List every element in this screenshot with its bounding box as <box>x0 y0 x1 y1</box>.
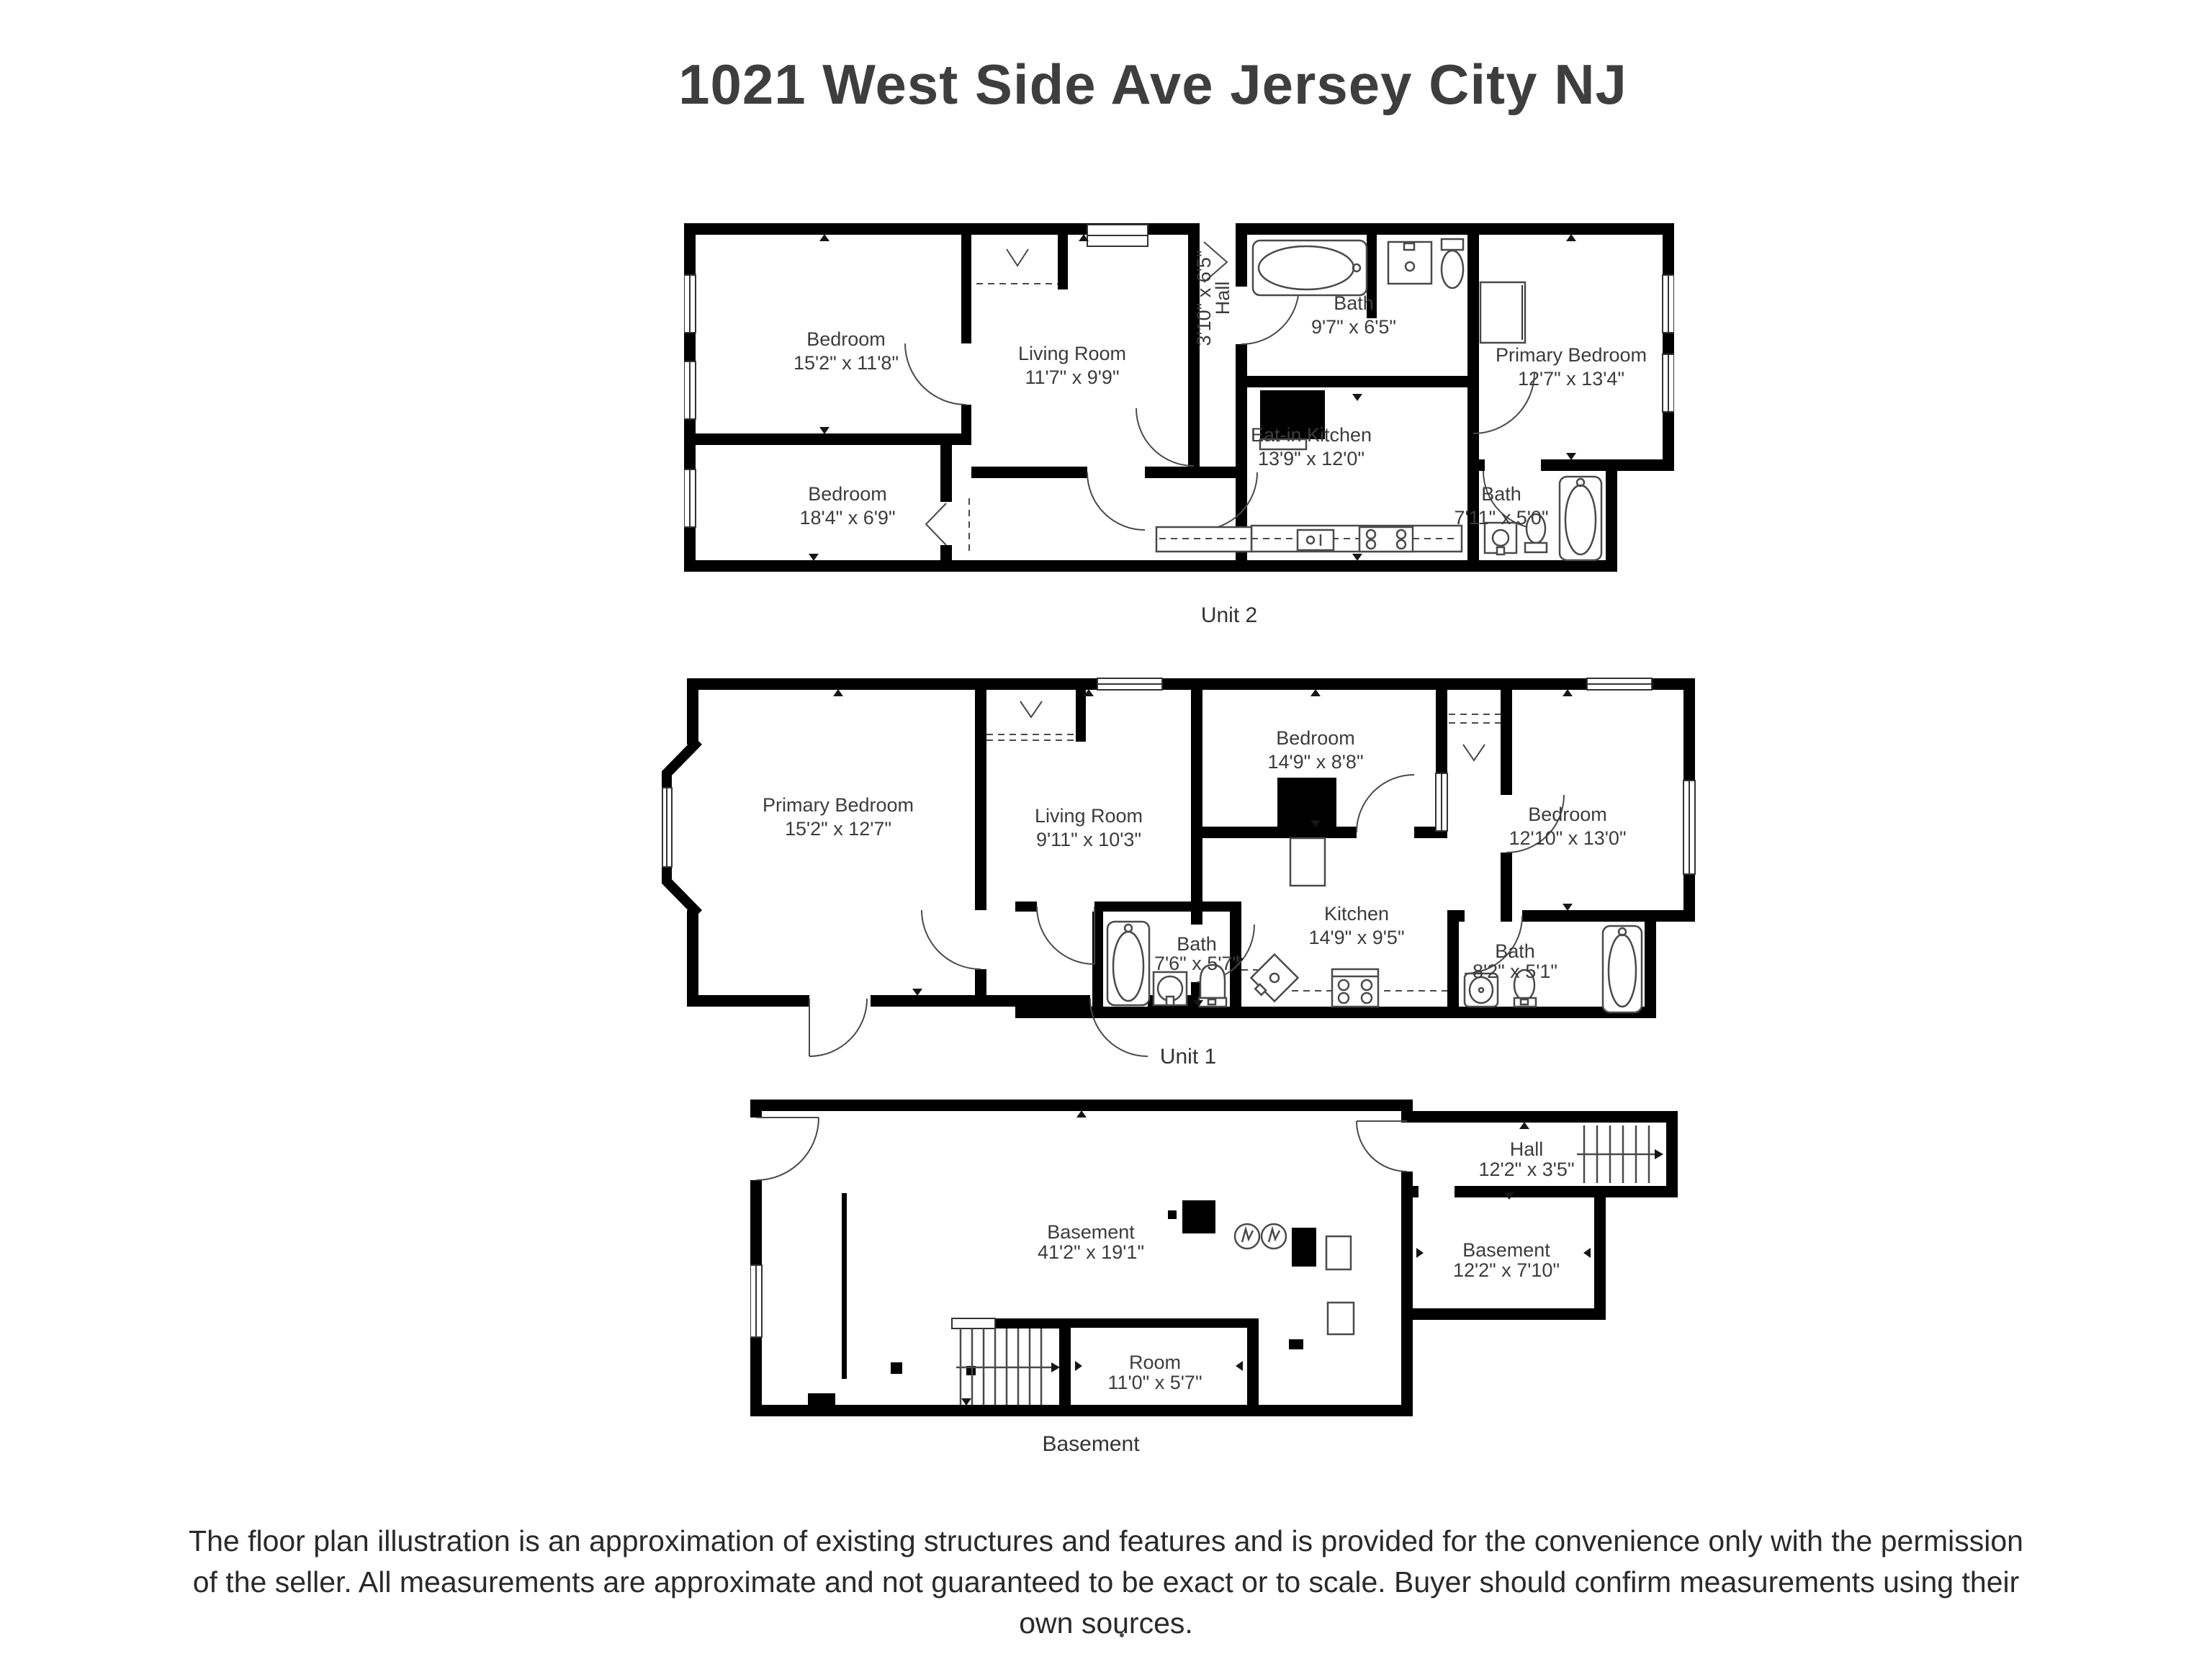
door-arc <box>905 343 966 405</box>
window <box>1683 781 1695 874</box>
svg-text:Bath: Bath <box>1481 483 1521 505</box>
counter <box>1156 527 1251 552</box>
window <box>684 275 696 333</box>
room-label-hall: Hall12'2" x 3'5" <box>1478 1138 1574 1180</box>
floorplan-basement: Basement41'2" x 19'1" Hall12'2" x 3'5" B… <box>750 1100 1691 1420</box>
svg-text:Hall: Hall <box>1212 282 1233 315</box>
floorplan-unit-2: Bedroom15'2" x 11'8" Bedroom18'4" x 6'9"… <box>684 217 1674 577</box>
svg-text:Primary Bedroom: Primary Bedroom <box>1496 344 1647 366</box>
shelf <box>1290 838 1325 886</box>
svg-text:7'6" x 5'7": 7'6" x 5'7" <box>1154 953 1239 974</box>
plan-label-basement: Basement <box>997 1432 1184 1457</box>
svg-text:Kitchen: Kitchen <box>1324 903 1389 925</box>
post <box>1289 1339 1303 1349</box>
sink <box>1388 242 1431 284</box>
svg-text:Bedroom: Bedroom <box>1276 727 1355 749</box>
stove <box>1359 527 1413 552</box>
stairs <box>1577 1125 1663 1183</box>
corner-sink <box>1251 954 1298 1001</box>
closet-chevron <box>1020 701 1042 717</box>
room-label-hall: Hall3'10" x 6'5" <box>1193 250 1233 346</box>
svg-text:9'11" x 10'3": 9'11" x 10'3" <box>1036 829 1141 850</box>
room-label-bath-1: Bath7'6" x 5'7" <box>1154 933 1239 974</box>
svg-text:Room: Room <box>1129 1352 1181 1373</box>
plan-label-unit-2: Unit 2 <box>1136 603 1323 628</box>
room-label-primary-bedroom: Primary Bedroom12'7" x 13'4" <box>1496 344 1647 390</box>
window <box>1097 678 1162 690</box>
artifact-dot <box>1120 1633 1124 1637</box>
window <box>1587 678 1652 690</box>
room-label-bedroom-2: Bedroom18'4" x 6'9" <box>799 483 895 529</box>
svg-text:12'2" x 3'5": 12'2" x 3'5" <box>1478 1159 1574 1180</box>
post <box>1168 1210 1177 1219</box>
bathtub <box>1107 922 1149 1005</box>
window <box>1663 354 1674 412</box>
svg-text:9'7" x 6'5": 9'7" x 6'5" <box>1311 316 1396 338</box>
disclaimer-text: The floor plan illustration is an approx… <box>184 1521 2028 1644</box>
svg-text:Hall: Hall <box>1510 1138 1544 1160</box>
room-label-bedroom-1: Bedroom15'2" x 11'8" <box>793 328 899 374</box>
water-heater <box>1262 1224 1286 1249</box>
bifold-door <box>926 503 946 545</box>
window <box>750 1265 762 1337</box>
room-label-bedroom-center: Bedroom14'9" x 8'8" <box>1267 727 1363 773</box>
door-arc <box>922 910 981 969</box>
svg-text:12'7" x 13'4": 12'7" x 13'4" <box>1518 368 1624 390</box>
hall-door <box>1357 1121 1407 1172</box>
bathtub <box>1253 240 1367 295</box>
svg-text:8'2" x 5'1": 8'2" x 5'1" <box>1473 961 1557 982</box>
svg-text:Living Room: Living Room <box>1035 805 1143 827</box>
svg-text:Living Room: Living Room <box>1018 343 1126 364</box>
svg-text:12'10" x 13'0": 12'10" x 13'0" <box>1509 827 1626 849</box>
appliance <box>1326 1236 1351 1269</box>
room-label-primary-bedroom: Primary Bedroom15'2" x 12'7" <box>763 794 914 840</box>
window <box>1436 773 1447 831</box>
closet-chevron <box>1007 249 1028 266</box>
door-arc <box>1087 472 1145 530</box>
svg-text:Basement: Basement <box>1047 1221 1135 1243</box>
water-heater <box>1235 1224 1259 1249</box>
plan-label-unit-1: Unit 1 <box>1094 1045 1282 1069</box>
vestibule-window <box>1087 225 1148 246</box>
svg-text:14'9" x 9'5": 14'9" x 9'5" <box>1308 927 1404 948</box>
stairs <box>956 1328 1060 1405</box>
basement-doors <box>756 1118 1407 1180</box>
closet <box>1480 282 1525 343</box>
entry-door <box>809 999 867 1056</box>
landing <box>952 1318 995 1328</box>
svg-text:Bath: Bath <box>1334 292 1374 314</box>
window <box>1663 275 1674 333</box>
door-arc <box>1357 775 1414 832</box>
support-beam <box>842 1193 847 1379</box>
chimney <box>1182 1200 1215 1233</box>
room-label-kitchen: Kitchen14'9" x 9'5" <box>1308 903 1404 948</box>
svg-text:Basement: Basement <box>1462 1239 1550 1261</box>
page-title: 1021 West Side Ave Jersey City NJ <box>0 52 2212 117</box>
door-arc <box>1136 408 1194 466</box>
svg-text:Primary Bedroom: Primary Bedroom <box>763 794 914 816</box>
room-label-bedroom-right: Bedroom12'10" x 13'0" <box>1509 804 1626 849</box>
room-label-living-room: Living Room9'11" x 10'3" <box>1035 805 1143 850</box>
closet-chevron <box>1463 745 1485 760</box>
bay-window <box>662 788 672 867</box>
svg-text:11'0" x 5'7": 11'0" x 5'7" <box>1107 1372 1202 1393</box>
svg-text:41'2" x 19'1": 41'2" x 19'1" <box>1038 1241 1144 1263</box>
appliance <box>1328 1303 1354 1334</box>
room-label-basement-main: Basement41'2" x 19'1" <box>1038 1221 1144 1263</box>
svg-text:Bedroom: Bedroom <box>1528 804 1607 825</box>
svg-text:13'9" x 12'0": 13'9" x 12'0" <box>1258 448 1364 469</box>
svg-text:Bath: Bath <box>1495 940 1535 962</box>
room-label-basement-small: Basement12'2" x 7'10" <box>1453 1239 1560 1281</box>
bathtub <box>1560 477 1601 560</box>
entry-door <box>756 1118 819 1180</box>
svg-text:12'2" x 7'10": 12'2" x 7'10" <box>1453 1259 1560 1281</box>
svg-text:Bedroom: Bedroom <box>808 483 887 505</box>
post <box>808 1393 835 1405</box>
sink <box>1154 972 1187 1005</box>
stove <box>1332 969 1378 1007</box>
chimney <box>1277 778 1336 838</box>
svg-text:15'2" x 11'8": 15'2" x 11'8" <box>793 352 899 374</box>
room-label-bath-2: Bath8'2" x 5'1" <box>1473 940 1557 982</box>
room-label-living-room: Living Room11'7" x 9'9" <box>1018 343 1126 388</box>
svg-text:Bedroom: Bedroom <box>806 328 886 350</box>
svg-text:3'10" x 6'5": 3'10" x 6'5" <box>1193 250 1215 346</box>
svg-text:7'11" x 5'0": 7'11" x 5'0" <box>1454 507 1548 529</box>
svg-text:14'9" x 8'8": 14'9" x 8'8" <box>1267 751 1363 773</box>
room-label-room: Room11'0" x 5'7" <box>1107 1352 1202 1393</box>
room-label-bath: Bath9'7" x 6'5" <box>1311 292 1396 338</box>
svg-text:Bath: Bath <box>1177 933 1217 955</box>
floorplan-unit-1: Primary Bedroom15'2" x 12'7" Living Room… <box>655 673 1701 1072</box>
door-arc <box>1200 472 1257 530</box>
bathtub <box>1603 926 1642 1012</box>
window <box>684 469 696 527</box>
basement-windows <box>750 1265 995 1337</box>
svg-text:15'2" x 12'7": 15'2" x 12'7" <box>785 818 891 840</box>
svg-text:11'7" x 9'9": 11'7" x 9'9" <box>1025 367 1119 388</box>
svg-text:18'4" x 6'9": 18'4" x 6'9" <box>799 507 895 529</box>
post <box>891 1362 902 1374</box>
window <box>684 361 696 419</box>
svg-text:Eat-in Kitchen: Eat-in Kitchen <box>1251 424 1372 446</box>
kitchen-sink <box>1298 530 1334 550</box>
toilet <box>1442 239 1463 288</box>
bath-door <box>1037 907 1094 964</box>
post <box>1292 1228 1316 1267</box>
